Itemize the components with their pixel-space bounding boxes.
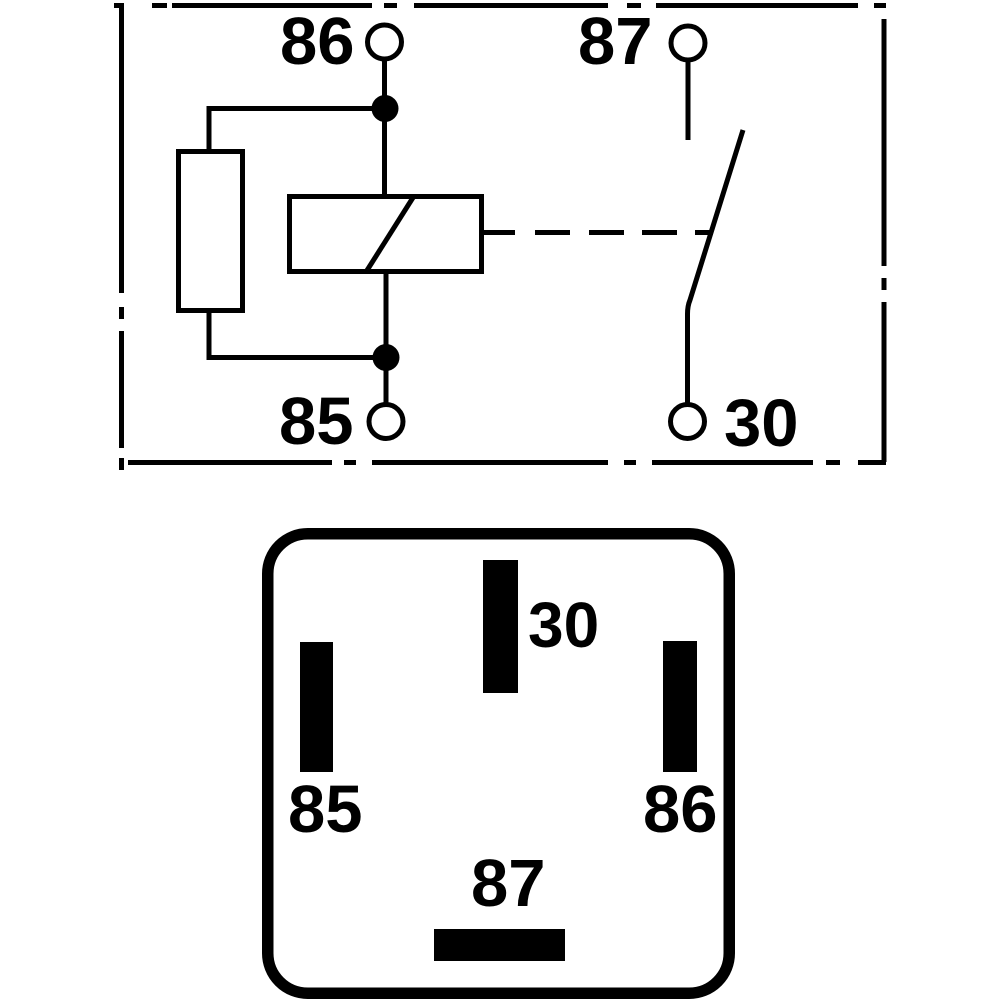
svg-text:30: 30 bbox=[528, 589, 599, 661]
svg-text:85: 85 bbox=[279, 384, 354, 459]
svg-text:87: 87 bbox=[578, 4, 653, 79]
svg-text:87: 87 bbox=[471, 846, 546, 921]
svg-text:86: 86 bbox=[643, 772, 718, 847]
svg-text:85: 85 bbox=[288, 772, 363, 847]
svg-text:86: 86 bbox=[280, 4, 355, 79]
svg-text:30: 30 bbox=[724, 386, 799, 461]
